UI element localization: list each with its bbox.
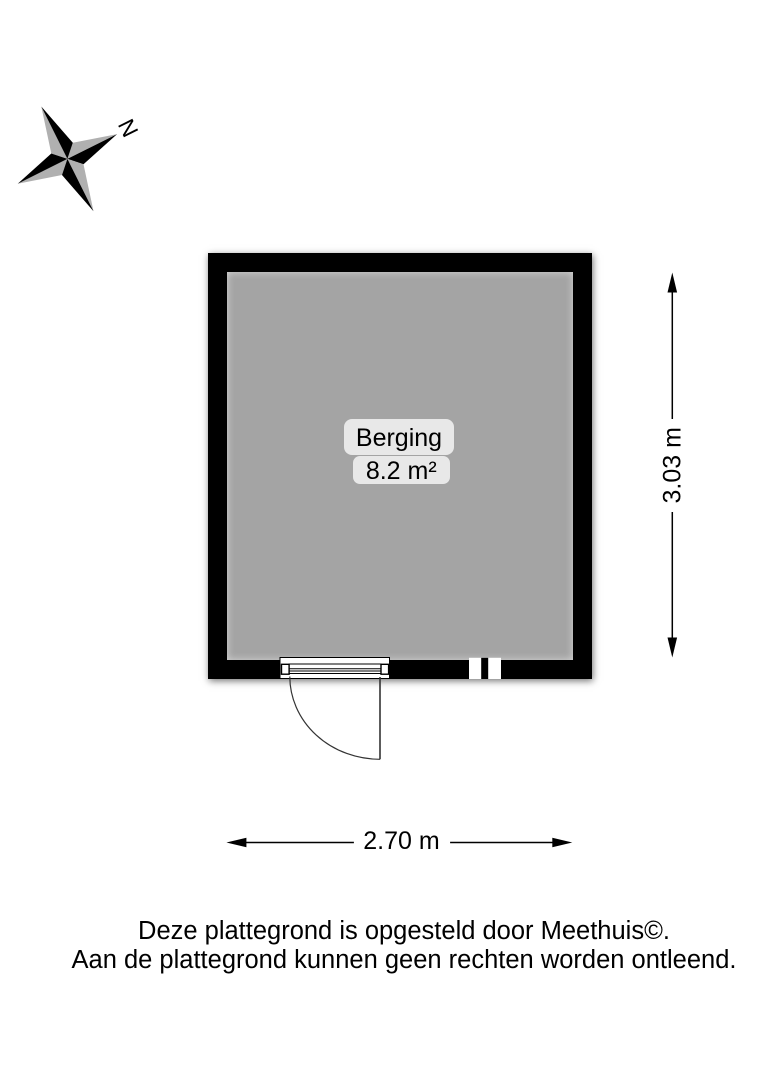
svg-text:N: N [113,115,144,141]
svg-text:3.03 m: 3.03 m [658,427,686,503]
svg-text:2.70 m: 2.70 m [363,827,439,855]
